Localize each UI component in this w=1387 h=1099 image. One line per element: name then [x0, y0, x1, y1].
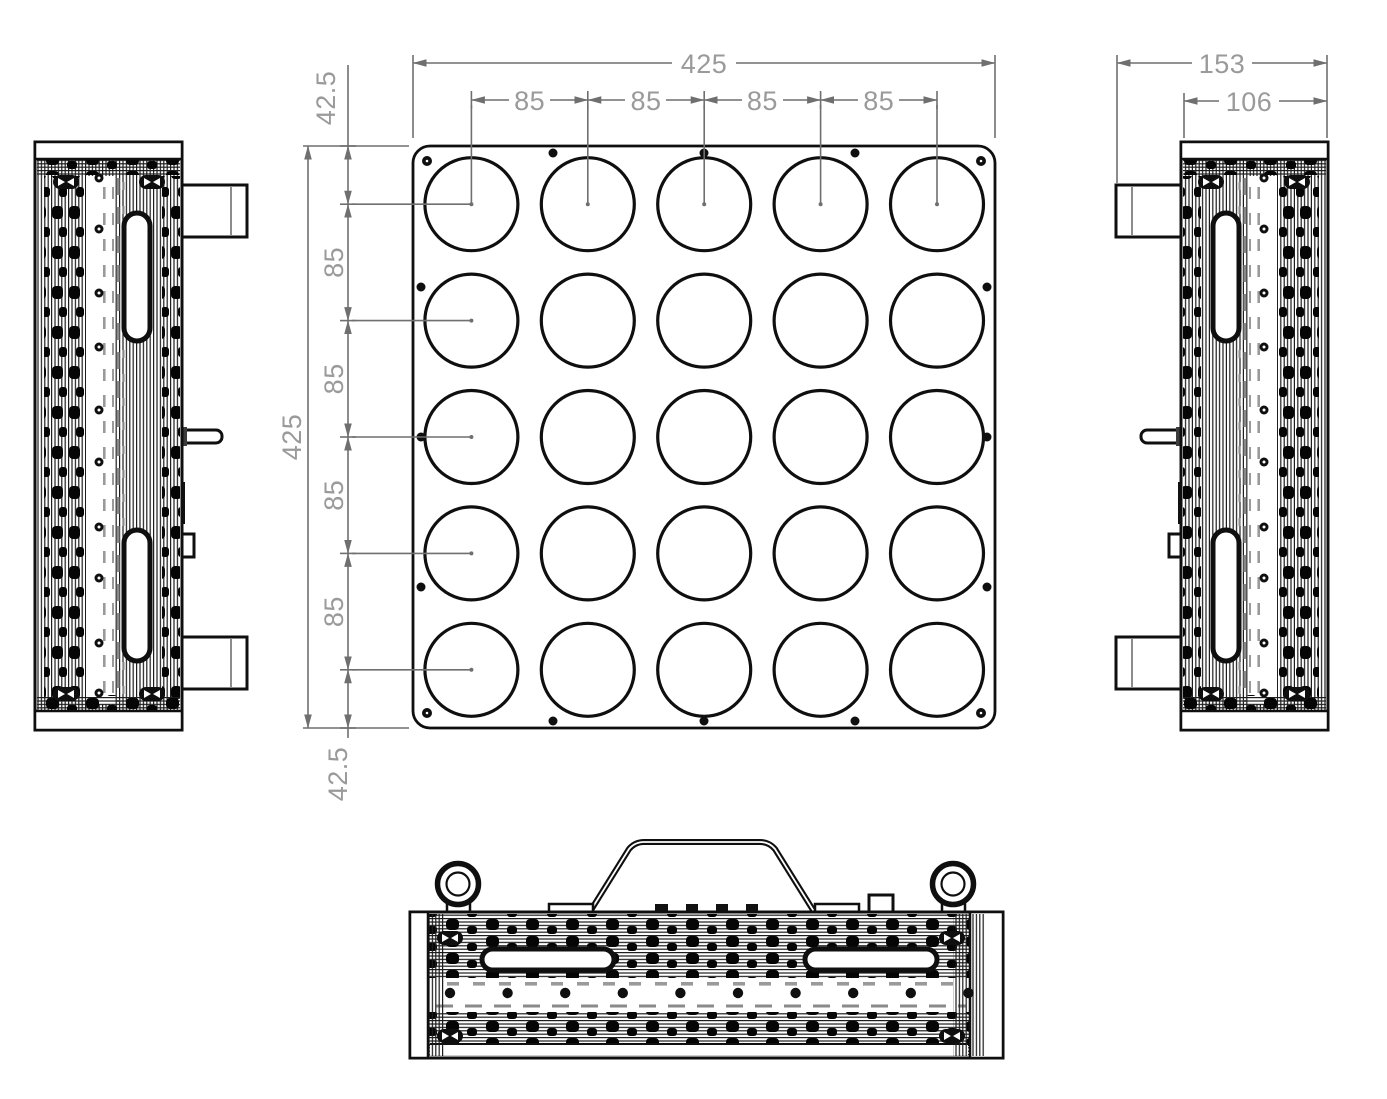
channel-screw [906, 988, 916, 998]
dim-text: 425 [277, 414, 307, 461]
extension-dot [702, 202, 706, 206]
dim-row-pitch-1: 85 [319, 241, 349, 283]
dim-text: 85 [514, 86, 545, 116]
channel-screw [502, 988, 512, 998]
bowtie-screw [437, 1029, 463, 1043]
edge-screw [700, 717, 709, 726]
edge-screw [983, 583, 992, 592]
channel-screw [848, 988, 858, 998]
edge-screw [983, 283, 992, 292]
extension-dot [819, 202, 823, 206]
corner-screw-center [426, 712, 429, 715]
dim-text: 85 [319, 247, 349, 278]
dim-text: 85 [319, 363, 349, 394]
dim-col-pitch-2: 85 [625, 86, 666, 116]
corner-screw-center [980, 712, 983, 715]
dim-text: 425 [681, 49, 728, 79]
vent-slot-left [482, 949, 614, 970]
bowtie-body [437, 931, 463, 945]
edge-screw [549, 149, 558, 158]
dim-text: 85 [747, 86, 778, 116]
extension-dot [469, 551, 473, 555]
corner-screw-center [426, 160, 429, 163]
bowtie-body [939, 931, 965, 945]
edge-screw [983, 433, 992, 442]
extension-dot [469, 668, 473, 672]
vent-slot-right [805, 949, 937, 970]
bottom-strip [430, 1044, 968, 1055]
channel-screw [963, 988, 973, 998]
edge-screw [851, 717, 860, 726]
bowtie-screw [437, 931, 463, 945]
dim-row-pitch-3: 85 [319, 474, 349, 516]
drawing-canvas: 425 85 85 85 85 425 42.5 42.5 [0, 0, 1387, 1099]
dim-text: 42.5 [311, 71, 341, 126]
dim-depth-overall: 153 [1192, 49, 1252, 79]
eye-bolt-ring-inner [942, 873, 965, 896]
corner-screw-center [980, 160, 983, 163]
carry-handle-highlight [551, 842, 858, 910]
dim-text: 85 [630, 86, 661, 116]
dim-text: 85 [863, 86, 894, 116]
dim-text: 42.5 [323, 747, 353, 802]
extension-dot [586, 202, 590, 206]
dim-margin-top: 42.5 [311, 62, 341, 134]
dim-col-pitch-3: 85 [742, 86, 783, 116]
channel-screw [790, 988, 800, 998]
dim-row-pitch-4: 85 [319, 591, 349, 633]
extension-dot [469, 319, 473, 323]
channel-screw [445, 988, 455, 998]
channel-screw [618, 988, 628, 998]
dim-depth-body: 106 [1219, 87, 1279, 117]
right-side-view [1116, 142, 1328, 730]
dim-text: 85 [319, 480, 349, 511]
power-connector [869, 895, 893, 912]
dim-row-pitch-2: 85 [319, 358, 349, 400]
bowtie-body [939, 1029, 965, 1043]
dim-col-pitch-1: 85 [509, 86, 550, 116]
eye-bolt-right [933, 864, 974, 913]
eye-bolt-ring-inner [447, 873, 470, 896]
dim-front-width: 425 [672, 49, 736, 79]
end-cap-left [410, 912, 428, 1058]
bowtie-body [437, 1029, 463, 1043]
front-plate [413, 146, 995, 728]
channel-screw [733, 988, 743, 998]
extension-dot [935, 202, 939, 206]
channel-screw [675, 988, 685, 998]
edge-screw [417, 283, 426, 292]
bowtie-screw [939, 931, 965, 945]
fin-shadow-band [428, 1012, 970, 1046]
bottom-view [410, 842, 1003, 1058]
edge-screw [417, 583, 426, 592]
dim-front-height: 425 [277, 405, 307, 469]
extension-dot [469, 202, 473, 206]
dim-margin-bottom: 42.5 [323, 738, 353, 810]
edge-screw [549, 717, 558, 726]
dim-text: 153 [1199, 49, 1246, 79]
channel-screw [560, 988, 570, 998]
edge-screw [851, 149, 860, 158]
dim-text: 85 [319, 596, 349, 627]
bowtie-screw [939, 1029, 965, 1043]
dim-col-pitch-4: 85 [858, 86, 899, 116]
eye-bolt-left [438, 864, 479, 913]
extension-dot [469, 435, 473, 439]
left-side-view [35, 142, 247, 730]
end-cap-fins [972, 914, 986, 1056]
channel-dashes [440, 981, 962, 990]
front-view [413, 146, 995, 728]
cad-drawing: 425 85 85 85 85 425 42.5 42.5 [0, 0, 1387, 1099]
dim-text: 106 [1226, 87, 1273, 117]
